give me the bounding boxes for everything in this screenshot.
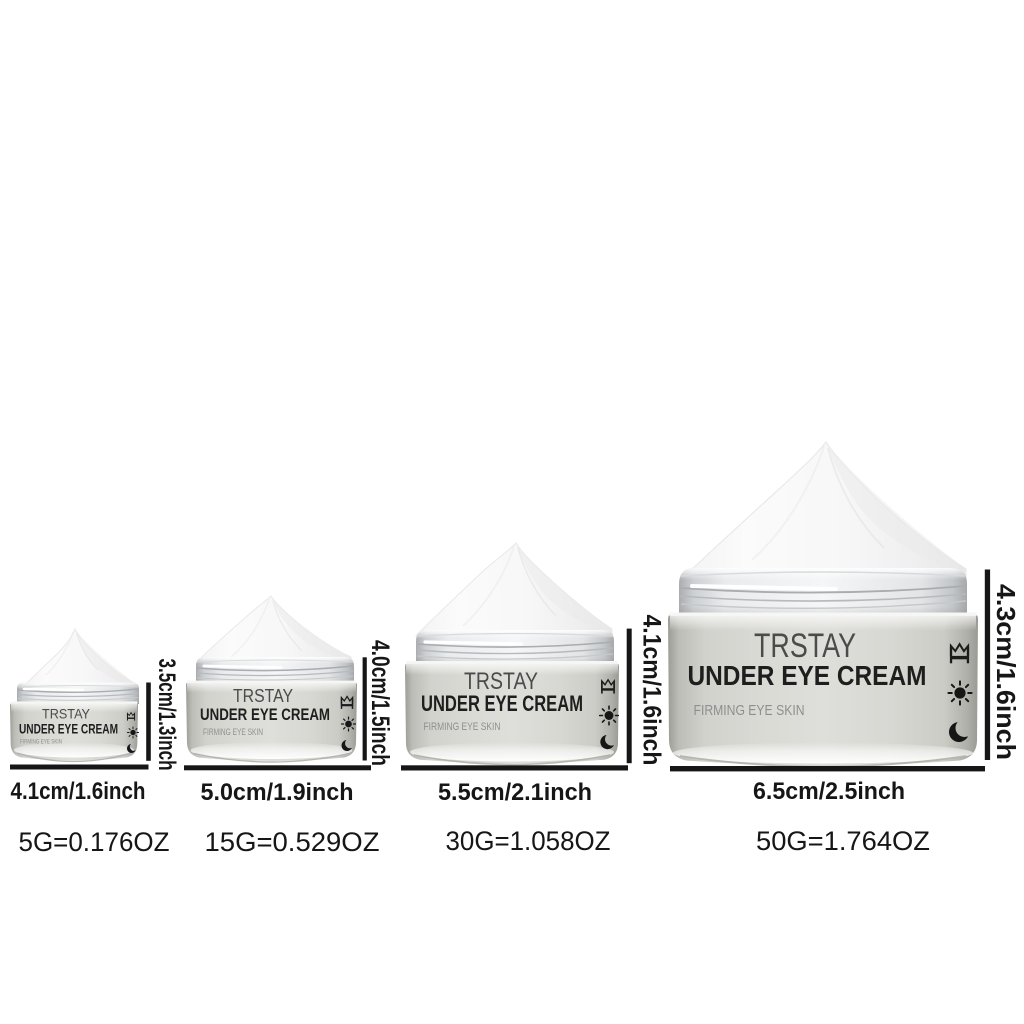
svg-text:4.3cm/1.6inch: 4.3cm/1.6inch — [991, 584, 1021, 760]
svg-text:15G=0.529OZ: 15G=0.529OZ — [205, 827, 380, 857]
svg-text:3.5cm/1.3inch: 3.5cm/1.3inch — [153, 659, 180, 771]
svg-text:FIRMING EYE SKIN: FIRMING EYE SKIN — [203, 727, 263, 737]
svg-text:30G=1.058OZ: 30G=1.058OZ — [446, 826, 611, 856]
svg-text:4.0cm/1.5inch: 4.0cm/1.5inch — [366, 640, 394, 766]
svg-text:UNDER EYE CREAM: UNDER EYE CREAM — [688, 660, 927, 691]
svg-text:TRSTAY: TRSTAY — [42, 707, 90, 722]
svg-text:UNDER EYE CREAM: UNDER EYE CREAM — [421, 691, 583, 716]
svg-text:50G=1.764OZ: 50G=1.764OZ — [756, 826, 930, 856]
svg-text:FIRMING EYE SKIN: FIRMING EYE SKIN — [424, 721, 501, 733]
svg-text:5.0cm/1.9inch: 5.0cm/1.9inch — [201, 779, 354, 806]
svg-text:UNDER EYE CREAM: UNDER EYE CREAM — [19, 721, 118, 737]
svg-text:6.5cm/2.5inch: 6.5cm/2.5inch — [753, 778, 905, 805]
svg-text:TRSTAY: TRSTAY — [233, 685, 293, 706]
svg-text:UNDER EYE CREAM: UNDER EYE CREAM — [200, 705, 330, 724]
svg-text:5.5cm/2.1inch: 5.5cm/2.1inch — [438, 779, 592, 806]
svg-text:4.1cm/1.6inch: 4.1cm/1.6inch — [11, 778, 146, 805]
svg-text:5G=0.176OZ: 5G=0.176OZ — [19, 827, 170, 857]
svg-text:FIRMING EYE SKIN: FIRMING EYE SKIN — [20, 739, 62, 746]
svg-text:4.1cm/1.6inch: 4.1cm/1.6inch — [638, 615, 666, 766]
svg-text:FIRMING EYE SKIN: FIRMING EYE SKIN — [694, 702, 805, 719]
